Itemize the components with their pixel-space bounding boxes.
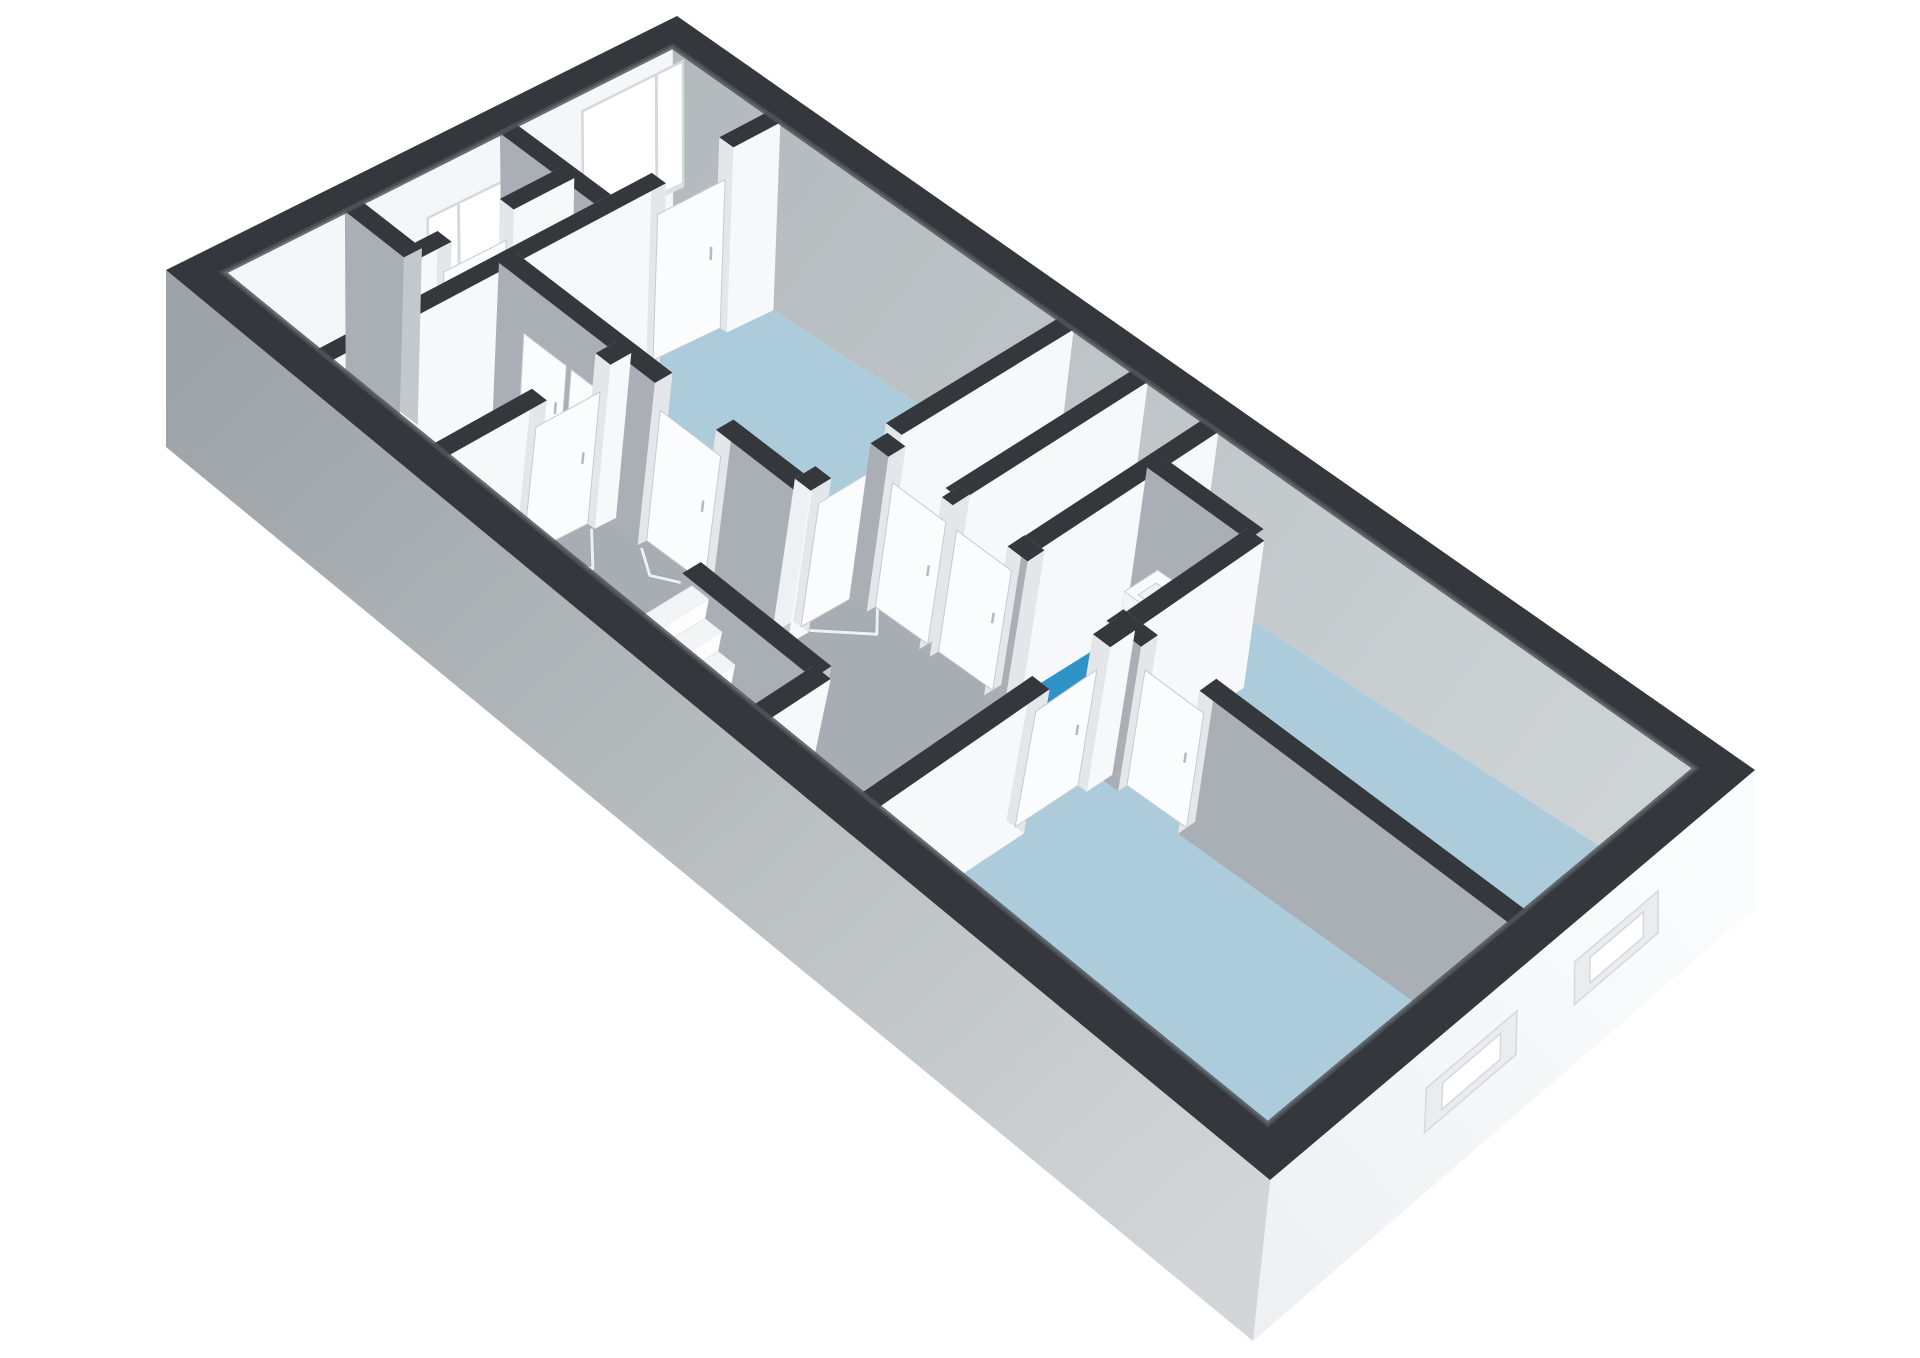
- floorplan-3d-svg: [0, 0, 1920, 1358]
- wall-hall-living-face: [727, 123, 781, 333]
- door-handle: [1076, 725, 1078, 735]
- floorplan-3d-view: [0, 0, 1920, 1358]
- door-handle: [1184, 753, 1186, 763]
- door-handle: [582, 452, 583, 464]
- door-handle: [992, 613, 994, 623]
- door-handle: [555, 402, 556, 414]
- window-mullion: [459, 203, 460, 270]
- door-handle: [927, 565, 929, 576]
- door-handle: [702, 501, 703, 512]
